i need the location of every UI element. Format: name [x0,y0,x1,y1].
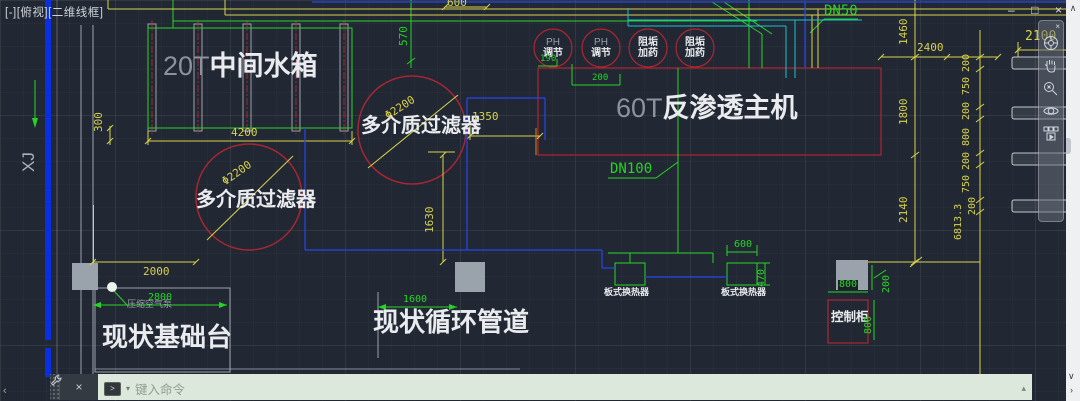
dn50-label: DN50 [824,4,858,18]
dn100-label: DN100 [610,162,652,176]
chevron-left-icon[interactable]: ‹ [3,385,7,397]
dim-chain-200d: 200 [968,197,978,215]
dim-470: 470 [757,269,767,287]
dim-chain-800: 800 [962,128,972,146]
dim-1600: 1600 [403,295,427,305]
command-close-icon[interactable]: × [75,380,82,394]
ro-unit-label: 60T反渗透主机 [616,94,798,122]
expand-right-icon[interactable]: › [1070,385,1073,395]
scale-dosing-1: 阻垢加药 [629,29,667,67]
navigation-bar: × [1038,20,1064,222]
dim-800-side: 800 [864,316,874,334]
dim-4200: 4200 [231,127,258,138]
window-controls: – □ × [1008,3,1062,17]
collapse-up-icon[interactable]: ∧ [1066,3,1080,14]
navbar-close-icon[interactable]: × [1055,23,1060,31]
tank-label: 20T中间水箱 [163,52,318,80]
pan-hand-icon[interactable] [1042,58,1060,74]
dim-2800: 2800 [148,293,172,303]
dim-600-top: 600 [447,0,467,8]
dim-190: 190 [540,55,556,64]
grip-point [107,282,117,292]
dim-600-hx: 600 [734,240,752,250]
axis-label: XJ [20,152,38,172]
filter-upper-label: 多介质过滤器 [361,116,481,137]
showmotion-icon[interactable] [1042,125,1060,142]
foundation-label: 现状基础台 [102,324,232,351]
command-tools: × [60,374,98,400]
dim-2140: 2140 [898,197,909,224]
dim-6813: 6813.3 [954,204,964,240]
customize-wrench-icon[interactable] [50,374,62,386]
dim-2400: 2400 [917,42,944,53]
autocad-drawing-viewport[interactable]: 20T中间水箱 60T反渗透主机 多介质过滤器 多介质过滤器 现状基础台 现状循… [0,0,1080,401]
orbit-icon[interactable] [1042,103,1060,119]
scale-dosing-2: 阻垢加药 [676,29,714,67]
pipeline-label: 现状循环管道 [373,309,529,336]
hx1-label: 板式换热器 [604,288,649,297]
dim-chain-750b: 750 [962,175,972,193]
viewport-controls[interactable]: [-][俯视][二维线框] [5,4,104,20]
hx2-label: 板式换热器 [721,288,766,297]
dim-chain-200a: 200 [962,54,972,72]
dim-800-cab: 800 [838,280,858,290]
command-line-bar: × > ▾ 键入命令 ▴ [50,374,1032,400]
dim-1350: 1350 [472,111,499,122]
dim-chain-750a: 750 [962,77,972,95]
command-prompt-icon[interactable]: > [104,382,121,396]
dim-1800: 1800 [898,99,909,126]
minimize-button[interactable]: – [1008,3,1015,17]
dim-chain-200c: 200 [962,152,972,170]
close-button[interactable]: × [1055,3,1062,17]
dim-570: 570 [398,26,409,46]
command-input[interactable]: > ▾ 键入命令 ▴ [98,374,1032,400]
restore-button[interactable]: □ [1031,3,1038,17]
right-edge-strip: ∧ ∨ › [1066,0,1080,401]
strip-handle[interactable] [1066,138,1071,154]
command-placeholder: 键入命令 [135,379,1016,398]
dim-2000: 2000 [143,266,170,277]
zoom-icon[interactable] [1042,80,1060,97]
command-dropdown-icon[interactable]: ▾ [126,384,130,393]
dim-300: 300 [93,112,104,132]
navigation-wheel-icon[interactable] [1042,34,1060,52]
dim-chain-200b: 200 [962,102,972,120]
filter-lower-label: 多介质过滤器 [196,190,316,211]
dim-1460: 1460 [898,19,909,46]
dim-200-cab: 200 [882,275,892,293]
ph-dosing-2: PH调节 [582,29,620,67]
dim-1630: 1630 [424,207,435,234]
dim-200-ph: 200 [592,74,608,83]
command-expand-icon[interactable]: ▴ [1021,383,1026,394]
collapse-down-icon[interactable]: ∨ [1068,371,1075,382]
